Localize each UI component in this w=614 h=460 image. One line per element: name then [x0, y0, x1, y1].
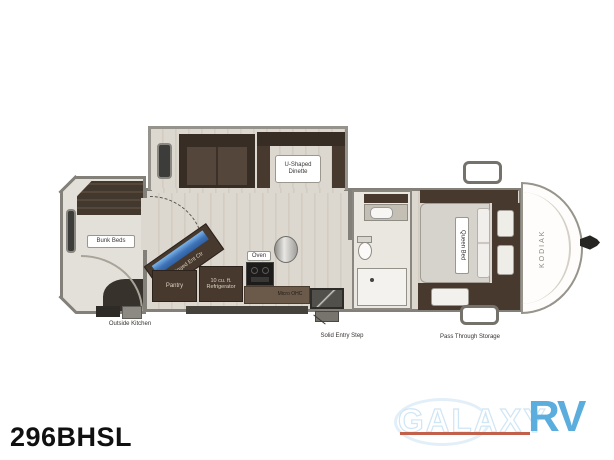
bedroom-overhead-cabinet: [420, 190, 518, 203]
burner-icon: [251, 267, 258, 274]
oven-door: [251, 277, 269, 282]
bath-overhead-cabinet: [364, 194, 408, 203]
dinette-bench-right: [332, 146, 345, 188]
solid-entry-step-label: Solid Entry Step: [316, 327, 368, 345]
toilet: [358, 242, 372, 260]
slide-out: U-Shaped Dinette: [148, 126, 348, 190]
outside-kitchen-hatch: [96, 306, 120, 317]
bath-vanity: [364, 204, 408, 221]
watermark-underline: [400, 432, 530, 435]
burner-icon: [262, 267, 269, 274]
storage-door-top: [463, 161, 502, 184]
bunk-room-window: [66, 209, 76, 253]
kodiak-brand-text: KODIAK: [537, 218, 549, 280]
pantry: Pantry: [152, 270, 197, 302]
refrigerator-label: 10 cu. ft. Refrigerator: [200, 267, 242, 301]
wardrobe-door: [431, 288, 469, 306]
model-number: 296BHSL: [10, 422, 132, 453]
slide-window: [157, 143, 172, 179]
bathroom: [352, 190, 412, 310]
closet-door: [497, 245, 514, 275]
bunk-room-door-opening: [141, 198, 151, 250]
bunk-curved-front: [81, 255, 143, 311]
bed-pillows: [477, 208, 490, 278]
outside-kitchen-label: Outside Kitchen: [88, 319, 172, 329]
sofa: [179, 134, 255, 188]
range-cooktop: [246, 262, 274, 286]
dinette-bench-top: [257, 132, 345, 146]
entry-step: [315, 311, 339, 322]
underbody-bar: [186, 306, 308, 314]
watermark-rv-text: RV: [528, 392, 584, 442]
dinette-bench-left: [257, 146, 270, 188]
closet-door: [497, 210, 514, 237]
refrigerator: 10 cu. ft. Refrigerator: [199, 266, 243, 302]
storage-door-bottom: [460, 305, 499, 325]
bunk-beds-furniture: [77, 181, 143, 215]
bunk-room: Bunk Beds: [60, 176, 146, 314]
hitch-coupler: [580, 234, 600, 251]
bed-headboard-closet: [492, 203, 520, 283]
micro-ohc-label: Micro OHC: [272, 288, 308, 302]
slide-floor-patch: [152, 188, 344, 193]
oven-label: Oven: [247, 251, 271, 261]
shower: [357, 268, 407, 306]
floorplan-page: Bunk Beds Outside Kitchen U-Shaped Dinet…: [0, 0, 614, 460]
bath-sink: [370, 207, 393, 219]
cylinder-fixture: [274, 236, 298, 263]
u-shaped-dinette-label: U-Shaped Dinette: [275, 155, 321, 183]
entry-landing: [310, 288, 344, 309]
shower-drain-icon: [370, 278, 374, 282]
pass-through-storage-label: Pass Through Storage: [434, 327, 506, 347]
sofa-cushions: [187, 147, 247, 185]
bunk-beds-label: Bunk Beds: [87, 235, 135, 248]
pantry-label: Pantry: [153, 271, 196, 301]
outside-kitchen-box: [122, 306, 142, 319]
queen-bed-label: Queen Bed: [455, 217, 469, 274]
